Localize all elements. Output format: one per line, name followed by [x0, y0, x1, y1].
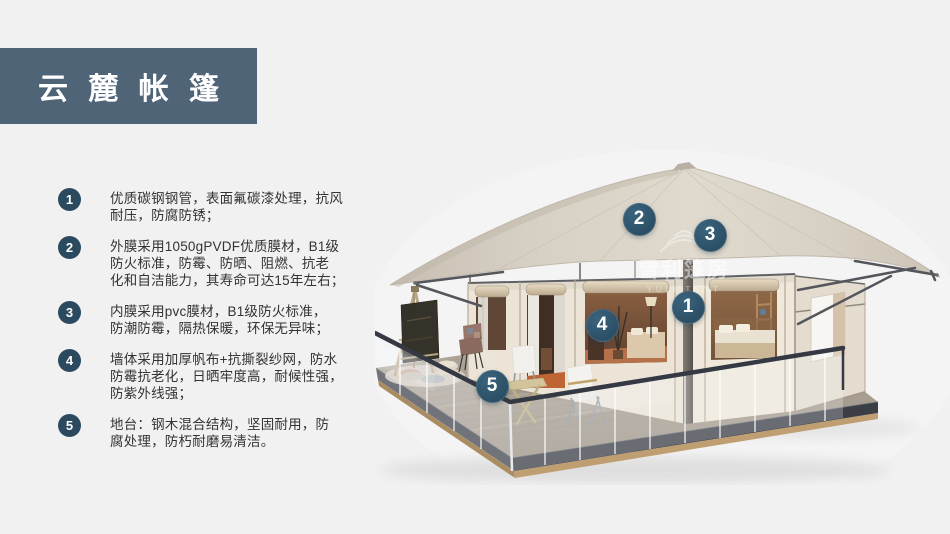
slide: { "page": { "background": "#f1f1f2" }, "…: [0, 0, 950, 534]
feature-number-badge: 4: [58, 349, 81, 372]
feature-item-5: 5地台：钢木混合结构，坚固耐用，防 腐处理，防朽耐磨易清洁。: [58, 416, 363, 450]
watermark-cn: 雪利篷房: [638, 258, 730, 282]
feature-list: 1优质碳钢钢管，表面氟碳漆处理，抗风 耐压，防腐防锈；2外膜采用1050gPVD…: [58, 190, 363, 464]
feature-number-badge: 5: [58, 414, 81, 437]
tent-marker-3: 3: [694, 219, 727, 252]
feature-item-1: 1优质碳钢钢管，表面氟碳漆处理，抗风 耐压，防腐防锈；: [58, 190, 363, 224]
feature-text: 内膜采用pvc膜材，B1级防火标准， 防潮防霉，隔热保暖，环保无异味；: [110, 303, 329, 337]
tent-marker-2: 2: [623, 203, 656, 236]
feature-number-badge: 3: [58, 301, 81, 324]
feature-text: 墙体采用加厚帆布+抗撕裂纱网，防水 防霉抗老化，日晒牢度高，耐候性强， 防紫外线…: [110, 351, 343, 402]
tent-drawing: 雪利篷房 YULI TENT: [375, 140, 950, 485]
tent-marker-4: 4: [586, 309, 619, 342]
feature-number-badge: 2: [58, 236, 81, 259]
feature-item-2: 2外膜采用1050gPVDF优质膜材，B1级 防火标准，防霉、防晒、阻燃、抗老 …: [58, 238, 363, 289]
feature-item-3: 3内膜采用pvc膜材，B1级防火标准， 防潮防霉，隔热保暖，环保无异味；: [58, 303, 363, 337]
tent-marker-5: 5: [476, 370, 509, 403]
feature-text: 外膜采用1050gPVDF优质膜材，B1级 防火标准，防霉、防晒、阻燃、抗老 化…: [110, 238, 345, 289]
tent-marker-1: 1: [672, 291, 705, 324]
page-title: 云 麓 帐 篷: [38, 64, 225, 108]
feature-number-badge: 1: [58, 188, 81, 211]
feature-text: 优质碳钢钢管，表面氟碳漆处理，抗风 耐压，防腐防锈；: [110, 190, 343, 224]
ground-shadow: [380, 456, 890, 484]
feature-text: 地台：钢木混合结构，坚固耐用，防 腐处理，防朽耐磨易清洁。: [110, 416, 329, 450]
feature-item-4: 4墙体采用加厚帆布+抗撕裂纱网，防水 防霉抗老化，日晒牢度高，耐候性强， 防紫外…: [58, 351, 363, 402]
tent-illustration: 雪利篷房 YULI TENT: [375, 140, 950, 485]
title-bar: 云 麓 帐 篷: [0, 46, 259, 126]
